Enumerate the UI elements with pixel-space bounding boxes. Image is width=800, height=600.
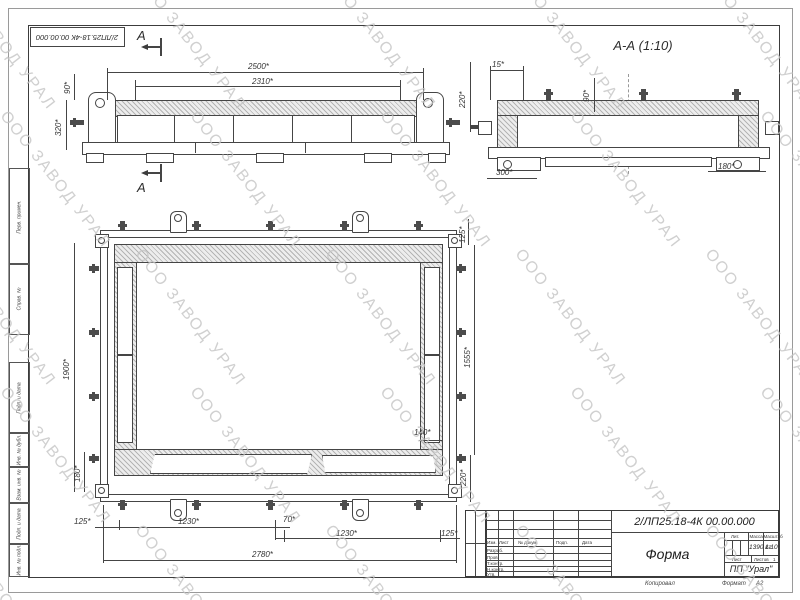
extension-line — [135, 80, 136, 100]
dim-line — [490, 70, 523, 71]
tb-header-izm: Изм. — [487, 540, 497, 545]
drawing-sheet: Перв. примен. Справ. № Подп. и дата Инв.… — [0, 0, 800, 600]
plan-bolt-top — [416, 221, 421, 231]
title-block-line — [732, 540, 733, 555]
front-panel-row — [117, 115, 415, 144]
tb-part-name: Форма — [611, 532, 724, 576]
plan-left-panel — [117, 355, 133, 443]
front-panel-divider — [174, 116, 175, 142]
dim-line — [135, 86, 400, 87]
tb-sheets-value: 1 — [773, 557, 776, 562]
dim-plan-left: 1900* — [62, 359, 71, 380]
plan-lug-hole — [356, 214, 364, 222]
margin-label: Справ. № — [17, 288, 23, 311]
title-block: Изм. Лист № докум. Подп. Дата Разраб. Пр… — [485, 510, 779, 577]
dim-section-foot-right: 180* — [718, 162, 734, 171]
plan-bolt-bottom — [416, 500, 421, 510]
tb-row-tkontr: Т.контр. — [487, 561, 503, 566]
margin-label: Инв. № дубл. — [17, 435, 23, 466]
tb-company: ПП "Урал" — [724, 562, 778, 576]
dim-line — [103, 560, 456, 561]
margin-cell-podp-data-1: Подп. и дата — [9, 362, 30, 434]
plan-bolt-top — [268, 221, 273, 231]
tb-row-utv: Утв. — [487, 572, 496, 577]
inverted-designation-stamp: 2/ЛП25.18-4К 00.00.000 — [30, 27, 125, 47]
format-label: Формат — [722, 581, 746, 587]
extension-line — [523, 66, 524, 100]
front-left-lug-hole — [95, 98, 105, 108]
dim-line — [594, 78, 595, 112]
title-block-line — [486, 571, 611, 572]
kopiroval-label: Копировал — [645, 581, 675, 587]
tb-header-list: Лист — [499, 540, 509, 545]
dim-plan-top-right: 125* — [458, 227, 467, 243]
front-rail-joint — [305, 143, 306, 153]
title-block-line — [486, 560, 611, 561]
dim-line — [107, 72, 423, 73]
margin-label: Инв. № подл. — [17, 544, 23, 575]
dim-line — [468, 219, 469, 245]
title-block-line — [486, 553, 611, 554]
dim-plan-b70: 70* — [283, 515, 295, 524]
tb-scale-label: Масштаб — [764, 534, 783, 539]
front-rail-joint — [195, 143, 196, 153]
tb-row-prov: Пров. — [487, 555, 499, 560]
dim-line — [74, 74, 75, 100]
plan-bolt-bottom — [120, 500, 125, 510]
plan-bolt-top — [342, 221, 347, 231]
tb-sheet-label: Лист — [732, 557, 742, 562]
margin-label: Подп. и дата — [17, 508, 23, 539]
tb-header-doc: № докум. — [518, 540, 538, 545]
front-foot — [146, 153, 174, 163]
dim-line — [419, 440, 443, 441]
plan-bolt-left — [89, 266, 99, 271]
dim-line — [487, 178, 537, 179]
margin-cell-sprav-no: Справ. № — [9, 263, 30, 335]
plan-right-panel — [424, 267, 440, 355]
tb-sheets-label: Листов — [754, 557, 769, 562]
plan-corner-hole — [98, 487, 105, 494]
margin-cell-perv-primen: Перв. примен. — [9, 168, 30, 265]
dim-line — [470, 62, 471, 132]
section-arrow-head — [141, 44, 148, 50]
front-panel-divider — [351, 116, 352, 142]
section-arrow-bar — [160, 38, 162, 56]
plan-bolt-left — [89, 330, 99, 335]
dim-section-depth: 90* — [582, 90, 591, 102]
dim-line — [84, 452, 85, 492]
section-mark-top: А — [137, 28, 146, 43]
section-right-wall-hatch — [737, 115, 759, 149]
section-left-wall-hatch — [497, 115, 519, 149]
dim-front-height: 320* — [54, 120, 63, 136]
margin-cell-vzam-inv: Взам. инв. № — [9, 466, 30, 504]
section-arrow-bar — [160, 164, 162, 182]
margin-cell-inv-podl: Инв. № подл. — [9, 543, 30, 577]
tb-header-data: Дата — [582, 540, 592, 545]
title-block-line — [740, 540, 741, 555]
plan-bolt-bottom — [342, 500, 347, 510]
front-panel-divider — [292, 116, 293, 142]
plan-bolt-left — [89, 456, 99, 461]
front-left-clamp-bolt — [70, 120, 84, 125]
front-right-lug-hole — [423, 98, 433, 108]
dim-line — [66, 100, 67, 150]
dim-section-height: 220* — [458, 92, 467, 108]
extension-line — [423, 68, 424, 100]
title-block-line — [486, 546, 611, 547]
title-block-line — [751, 555, 752, 562]
title-block-line — [486, 538, 611, 539]
section-mid-rail — [545, 157, 712, 167]
extension-line — [275, 520, 276, 540]
tb-mass-label: Масса — [750, 534, 763, 539]
plan-bolt-top — [120, 221, 125, 231]
extension-line — [490, 66, 491, 100]
plan-bolt-left — [89, 394, 99, 399]
section-left-clamp-pin — [471, 125, 478, 129]
tb-header-podp: Подп. — [556, 540, 568, 545]
section-stud — [734, 89, 739, 100]
plan-lug-hole — [174, 509, 182, 517]
title-block-line — [466, 543, 486, 544]
dim-plan-b1230r: 1230* — [336, 529, 357, 538]
front-foot — [364, 153, 392, 163]
plan-bolt-right — [456, 394, 466, 399]
plan-bolt-right — [456, 330, 466, 335]
section-mark-bottom: А — [137, 180, 146, 195]
plan-bolt-bottom — [194, 500, 199, 510]
section-cavity — [517, 115, 739, 149]
dim-section-foot-left: 300* — [496, 168, 512, 177]
extension-line — [284, 530, 285, 542]
tb-scale-value: 1:10 — [765, 544, 778, 551]
plan-corner-hole — [98, 237, 105, 244]
plan-corner-hole — [451, 237, 458, 244]
title-block-line — [486, 520, 611, 521]
plan-cavity — [136, 262, 421, 450]
tb-lit-label: Лит. — [731, 534, 739, 539]
dim-plan-bottom-right-v: 220* — [459, 470, 468, 486]
section-stud — [546, 89, 551, 100]
plan-bottom-panel-left — [150, 454, 312, 474]
tb-row-razrab: Разраб. — [487, 548, 503, 553]
dim-plan-b1230l: 1230* — [178, 517, 199, 526]
plan-bolt-bottom — [268, 500, 273, 510]
margin-label: Подп. и дата — [17, 382, 23, 413]
dim-plan-left-bottom: 180* — [73, 466, 82, 482]
plan-lug-hole — [174, 214, 182, 222]
front-panel-divider — [233, 116, 234, 142]
dim-front-inner: 2310* — [252, 77, 273, 86]
front-end-foot — [86, 153, 104, 163]
title-block-line — [486, 566, 611, 567]
section-right-clamp — [765, 121, 779, 135]
plan-bolt-right — [456, 266, 466, 271]
dim-line — [95, 527, 290, 528]
plan-bottom-panel-right — [322, 455, 436, 473]
plan-bolt-top — [194, 221, 199, 231]
format-value: А2 — [756, 581, 763, 587]
tb-designation: 2/ЛП25.18-4К 00.00.000 — [611, 511, 778, 532]
margin-label: Взам. инв. № — [17, 470, 23, 501]
margin-cell-inv-dubl: Инв. № дубл. — [9, 432, 30, 468]
dim-line — [470, 455, 471, 502]
front-end-foot — [428, 153, 446, 163]
dim-front-top: 90* — [63, 82, 72, 94]
extension-line — [119, 520, 120, 530]
extension-line — [103, 505, 104, 563]
dim-plan-right: 1555* — [463, 347, 472, 368]
title-block-line — [486, 529, 611, 530]
plan-lug-hole — [356, 509, 364, 517]
section-view-title: А-А (1:10) — [588, 38, 698, 53]
section-stud — [641, 89, 646, 100]
dim-line — [474, 245, 475, 455]
dim-line — [275, 538, 460, 539]
margin-cell-podp-data-2: Подп. и дата — [9, 502, 30, 545]
dim-plan-b125l: 125* — [74, 517, 90, 526]
designation-text: 2/ЛП25.18-4К 00.00.000 — [36, 33, 118, 42]
dim-front-overall: 2500* — [248, 62, 269, 71]
plan-hatch-top — [114, 244, 443, 264]
plan-corner-hole — [451, 487, 458, 494]
dim-line — [708, 171, 766, 172]
dim-section-lip: 15* — [492, 60, 504, 69]
front-foot — [256, 153, 284, 163]
title-block-side-cells — [465, 510, 487, 577]
dim-plan-panel: 140* — [414, 428, 430, 437]
extension-line — [400, 80, 401, 100]
section-arrow-head — [141, 170, 148, 176]
front-right-clamp-bolt — [446, 120, 460, 125]
margin-label: Перв. примен. — [17, 200, 23, 233]
plan-left-panel — [117, 267, 133, 355]
dim-line — [74, 243, 75, 492]
plan-bolt-right — [456, 456, 466, 461]
dim-plan-b125r: 125* — [441, 529, 457, 538]
section-left-clamp — [478, 121, 492, 135]
dim-plan-b2780: 2780* — [252, 550, 273, 559]
